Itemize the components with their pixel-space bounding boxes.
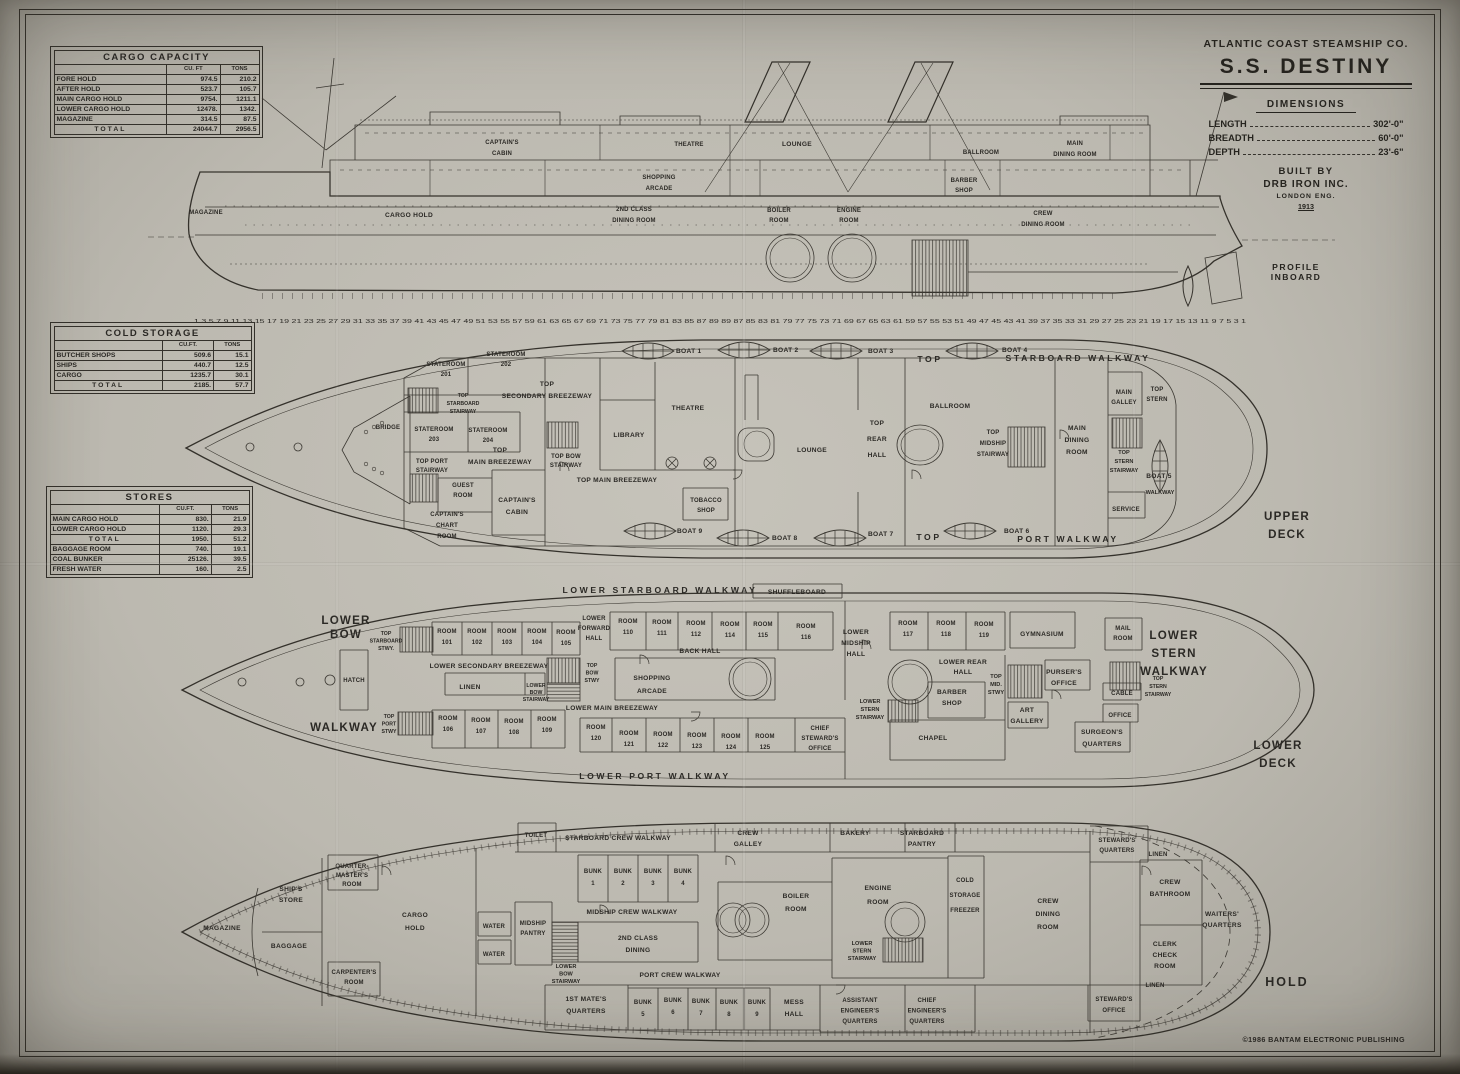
- shopping-arcade-label: SHOPPINGARCADE: [633, 675, 670, 695]
- captains-chart-room-label: CAPTAIN'SCHARTROOM: [430, 512, 463, 540]
- rudder: [1205, 252, 1242, 304]
- funnel-1: [745, 62, 810, 122]
- depth-value: 23'-6": [1378, 147, 1403, 157]
- built-by-label: BUILT BY: [1182, 166, 1430, 177]
- bunk-2-label: BUNK2: [614, 869, 633, 887]
- stewards-office-label: STEWARD'SOFFICE: [1095, 997, 1132, 1014]
- room-107-label: ROOM107: [471, 718, 490, 735]
- bow-walkway-label: WALKWAY: [310, 721, 378, 734]
- stateroom-202-label: STATEROOM202: [486, 352, 525, 368]
- walkway-label: WALKWAY: [1146, 490, 1175, 496]
- room-124-label: ROOM124: [721, 734, 740, 751]
- table-row: MAIN CARGO HOLD830.21.9: [50, 514, 249, 524]
- upper-deck-walls: [404, 358, 1176, 546]
- profile-caption: PROFILE INBOARD: [1258, 262, 1334, 282]
- boiler-circle-2: [735, 903, 769, 937]
- build-year: 1913: [1182, 202, 1430, 211]
- hold-magazine-label: MAGAZINE: [203, 925, 241, 932]
- vent-symbols: [666, 457, 716, 469]
- main-dining-room-label: MAINDININGROOM: [1065, 425, 1090, 456]
- bottom-walkway-label-2: PORT WALKWAY: [1017, 534, 1119, 544]
- linen-top-label: LINEN: [1149, 852, 1168, 858]
- top-stern-label: TOPSTERN: [1146, 387, 1167, 403]
- arcade-dome: [729, 658, 771, 700]
- assistant-engineers-quarters-label: ASSISTANTENGINEER'SQUARTERS: [841, 998, 880, 1025]
- bakery-label: BAKERY: [840, 830, 870, 837]
- lower-forward-hall-label: LOWERFORWARDHALL: [578, 616, 611, 642]
- frame-number-scale: 1 3 5 7 9 11 13 15 17 19 21 23 25 27 29 …: [194, 319, 1246, 325]
- bow-ring: [325, 675, 335, 685]
- barber-shop-label: BARBERSHOP: [937, 689, 967, 707]
- foremast: [262, 58, 396, 168]
- bunk-9-label: BUNK9: [748, 1000, 767, 1018]
- theatre-label: THEATRE: [672, 405, 705, 412]
- table-row: COAL BUNKER25126.39.5: [50, 554, 249, 564]
- boiler-circle-1: [716, 903, 750, 937]
- top-stern-stairway-hatch: [1112, 418, 1142, 448]
- lower-port-walkway-label: LOWER PORT WALKWAY: [579, 771, 731, 781]
- bunk-3-label: BUNK3: [644, 869, 663, 887]
- main-galley-label: MAINGALLEY: [1111, 390, 1137, 406]
- door-arc: [912, 470, 921, 479]
- lower-bow-label: LOWERBOW: [321, 614, 370, 641]
- guest-room-label: GUESTROOM: [452, 483, 474, 499]
- lower-deck-name: LOWERDECK: [1253, 739, 1302, 770]
- hull-outline: [188, 172, 1242, 293]
- funnel-2: [888, 62, 953, 122]
- midship-pantry-label: MIDSHIPPANTRY: [520, 921, 546, 937]
- door-arc: [640, 655, 649, 664]
- room-116-label: ROOM116: [796, 624, 815, 641]
- top-main-breezeway-fwd-label: TOPMAIN BREEZEWAY: [468, 447, 532, 466]
- room-112-label: ROOM112: [686, 621, 705, 638]
- quartermasters-room-label: QUARTER-MASTER'SROOM: [335, 864, 368, 888]
- top-bow-stwy-label: TOPBOWSTWY: [585, 663, 601, 684]
- boiler-1: [766, 234, 814, 282]
- dimensions-heading: DIMENSIONS: [1256, 99, 1356, 113]
- room-101-label: ROOM101: [437, 629, 456, 646]
- lower-secondary-breezeway-label: LOWER SECONDARY BREEZEWAY: [430, 663, 549, 670]
- ship-deck-plan-sheet: MAGAZINE CARGO HOLD CAPTAIN'SCABIN SHOPP…: [0, 0, 1460, 1074]
- crew-bathroom-label: CREWBATHROOM: [1150, 879, 1191, 898]
- room-111-label: ROOM111: [652, 620, 671, 637]
- profile-main-dining-label: MAINDINING ROOM: [1053, 141, 1097, 158]
- cold-storage-table: COLD STORAGE CU.FT.TONS BUTCHER SHOPS509…: [50, 322, 255, 394]
- funnel-stays: [705, 63, 990, 192]
- bunk-5-label: BUNK5: [634, 1000, 653, 1018]
- gymnasium-label: GYMNASIUM: [1020, 631, 1064, 638]
- room-120-label: ROOM120: [586, 725, 605, 742]
- top-stern-stairway-hatch-2: [1110, 662, 1140, 690]
- table-row: AFTER HOLD523.7105.7: [54, 84, 259, 94]
- bottom-walkway-label-1: TOP: [916, 532, 941, 542]
- cable-label: CABLE: [1111, 691, 1133, 697]
- table-total-row: TOTAL2185.57.7: [54, 380, 251, 390]
- top-port-stairway-label: TOP PORTSTAIRWAY: [416, 459, 448, 474]
- top-midship-stairway-label: TOPMIDSHIPSTAIRWAY: [977, 430, 1009, 458]
- boat9-label: BOAT 9: [677, 528, 703, 535]
- table-header-row: CU.FT.TONS: [54, 340, 251, 350]
- stores-table: STORES CU.FT.TONS MAIN CARGO HOLD830.21.…: [46, 486, 253, 578]
- top-bow-stwy-hatch: [547, 658, 580, 683]
- chapel-label: CHAPEL: [919, 735, 948, 742]
- top-port-stwy-hatch: [398, 712, 433, 735]
- starboard-crew-walkway-label: STARBOARD CREW WALKWAY: [565, 835, 671, 842]
- top-stern-stairway-label-2: TOPSTERNSTAIRWAY: [1145, 676, 1172, 698]
- starboard-pantry-label: STARBOARDPANTRY: [900, 830, 944, 848]
- crew-galley-label: CREWGALLEY: [734, 830, 763, 848]
- length-label: LENGTH: [1209, 119, 1247, 129]
- door-arc: [733, 470, 742, 479]
- boat8-label: BOAT 8: [772, 535, 798, 542]
- bunk-8-label: BUNK8: [720, 1000, 739, 1018]
- linen-label: LINEN: [459, 684, 480, 691]
- table-row: FRESH WATER160.2.5: [50, 564, 249, 574]
- lower-bow-stairway-hatch-hold: [552, 922, 578, 962]
- upper-deck-plan: BOAT 1 BOAT 2 BOAT 3 BOAT 4 BOAT 5 BOAT …: [186, 340, 1310, 558]
- dotted-leader: [1243, 154, 1375, 155]
- table-row: MAIN CARGO HOLD9754.1211.1: [54, 94, 259, 104]
- bow-capstan-2: [294, 443, 302, 451]
- top-stern-stairway-label: TOPSTERNSTAIRWAY: [1110, 450, 1139, 474]
- boiler-2-inner: [832, 238, 872, 278]
- lifeboat-9: [624, 523, 676, 539]
- lower-bow-stairway-label: LOWERBOWSTAIRWAY: [523, 683, 550, 703]
- stateroom-204-label: STATEROOM204: [468, 428, 507, 444]
- room-118-label: ROOM118: [936, 621, 955, 638]
- top-port-stwy-label: TOPPORTSTWY: [382, 714, 398, 735]
- lower-midship-hall-label: LOWERMIDSHIPHALL: [841, 629, 871, 658]
- top-rear-hall-label: TOPREARHALL: [867, 420, 887, 459]
- top-walkway-label-2: STARBOARD WALKWAY: [1006, 353, 1151, 363]
- cargo-capacity-title: CARGO CAPACITY: [54, 50, 260, 64]
- cold-storage-freezer-label: COLDSTORAGEFREEZER: [950, 878, 981, 914]
- room-115-label: ROOM115: [753, 622, 772, 639]
- deck-lines: [195, 172, 1219, 235]
- clerk-check-room-label: CLERKCHECKROOM: [1153, 941, 1178, 970]
- toilet-label: TOILET: [525, 833, 548, 839]
- room-109-label: ROOM109: [537, 717, 556, 734]
- profile-engine-room-label: ENGINEROOM: [837, 208, 861, 224]
- copyright-notice: ©1986 BANTAM ELECTRONIC PUBLISHING: [1205, 1035, 1405, 1044]
- profile-lounge-label: LOUNGE: [782, 141, 812, 148]
- waiters-quarters-label: WAITERS'QUARTERS: [1202, 911, 1242, 929]
- profile-shopping-arcade-label: SHOPPINGARCADE: [642, 175, 675, 192]
- chief-engineers-quarters-label: CHIEFENGINEER'SQUARTERS: [908, 998, 947, 1025]
- stair-dome-inner: [892, 664, 928, 700]
- top-mid-stwy-label: TOPMID.STWY: [988, 674, 1004, 696]
- service-label: SERVICE: [1112, 507, 1140, 513]
- tobacco-shop-label: TOBACCOSHOP: [690, 498, 722, 514]
- room-123-label: ROOM123: [687, 733, 706, 750]
- room-119-label: ROOM119: [974, 622, 993, 639]
- stores-title: STORES: [50, 490, 250, 504]
- hold-plan: TOILET STARBOARD CREW WALKWAY CREWGALLEY…: [182, 823, 1309, 1041]
- boat5-label: BOAT 5: [1146, 473, 1172, 480]
- profile-ballroom-label: BALLROOM: [963, 150, 999, 156]
- table-total-row: TOTAL1950.51.2: [50, 534, 249, 544]
- boiler-2: [828, 234, 876, 282]
- room-102-label: ROOM102: [467, 629, 486, 646]
- profile-cargo-hold-label: CARGO HOLD: [385, 212, 433, 219]
- top-bow-stairway-label: TOP BOWSTAIRWAY: [550, 454, 582, 469]
- bunk-6-label: BUNK6: [664, 998, 683, 1016]
- bow-capstan-4: [296, 678, 304, 686]
- cable-office-label: OFFICE: [1108, 713, 1131, 719]
- bunk-1-label: BUNK1: [584, 869, 603, 887]
- lower-main-breezeway-label: LOWER MAIN BREEZEWAY: [566, 705, 659, 712]
- art-gallery-label: ARTGALLERY: [1010, 707, 1044, 725]
- dotted-leader: [1257, 140, 1375, 141]
- top-starboard-stwy-label: TOPSTARBOARDSTWY.: [370, 631, 403, 652]
- lower-starboard-walkway-label: LOWER STARBOARD WALKWAY: [563, 585, 758, 595]
- room-122-label: ROOM122: [653, 732, 672, 749]
- boiler-circle-1-inner: [720, 907, 746, 933]
- lifeboat-1: [622, 343, 674, 359]
- bunk-7-label: BUNK7: [692, 999, 711, 1017]
- table-row: LOWER CARGO HOLD12478.1342.: [54, 104, 259, 114]
- table-row: SHIPS440.712.5: [54, 360, 251, 370]
- breadth-label: BREADTH: [1209, 133, 1254, 143]
- boat7-label: BOAT 7: [868, 531, 894, 538]
- length-dimension: LENGTH302'-0": [1209, 119, 1404, 129]
- top-starboard-stwy-hatch: [400, 627, 433, 652]
- top-secondary-breezeway-label: TOPSECONDARY BREEZEWAY: [502, 381, 593, 400]
- ballroom-floor: [897, 425, 943, 465]
- room-105-label: ROOM105: [556, 630, 575, 647]
- top-starboard-stairway-hatch: [408, 388, 438, 413]
- profile-crew-dining-label: CREWDINING ROOM: [1021, 211, 1065, 228]
- table-row: BAGGAGE ROOM740.19.1: [50, 544, 249, 554]
- door-arc: [1052, 690, 1061, 699]
- breadth-value: 60'-0": [1378, 133, 1403, 143]
- table-row: BUTCHER SHOPS509.615.1: [54, 350, 251, 360]
- lower-bow-stairway-label-hold: LOWERBOWSTAIRWAY: [552, 964, 581, 985]
- room-103-label: ROOM103: [497, 629, 516, 646]
- table-total-row: TOTAL24044.72956.5: [54, 124, 259, 134]
- cold-storage-title: COLD STORAGE: [54, 326, 252, 340]
- bow-capstan-1: [246, 443, 254, 451]
- ballroom-floor-inner: [901, 429, 939, 461]
- 2nd-class-dining-label: 2ND CLASSDINING: [618, 935, 658, 954]
- engine-hatch: [912, 240, 968, 296]
- lifeboat-3: [810, 343, 862, 359]
- double-rule: [1200, 83, 1412, 89]
- table-row: MAGAZINE314.587.5: [54, 114, 259, 124]
- mess-hall-label: MESSHALL: [784, 999, 804, 1018]
- length-value: 302'-0": [1373, 119, 1403, 129]
- dotted-leader: [1250, 126, 1370, 127]
- lower-stern-walkway-label: LOWERSTERNWALKWAY: [1140, 629, 1208, 678]
- chief-stewards-office-label: CHIEFSTEWARD'SOFFICE: [801, 726, 838, 752]
- mail-room-label: MAILROOM: [1113, 626, 1132, 642]
- superstructure-walls: [430, 125, 1110, 196]
- stateroom-203-label: STATEROOM203: [414, 427, 453, 443]
- depth-label: DEPTH: [1209, 147, 1241, 157]
- boat1-label: BOAT 1: [676, 348, 702, 355]
- table-row: CARGO1235.730.1: [54, 370, 251, 380]
- room-114-label: ROOM114: [720, 622, 739, 639]
- lifeboat-5: [1152, 440, 1168, 492]
- boiler-1-inner: [770, 238, 810, 278]
- water-2-label: WATER: [483, 952, 506, 958]
- company-name: ATLANTIC COAST STEAMSHIP CO.: [1182, 38, 1430, 50]
- surgeons-quarters-label: SURGEON'SQUARTERS: [1081, 729, 1123, 748]
- boiler-circle-2-inner: [739, 907, 765, 933]
- pursers-office-label: PURSER'SOFFICE: [1046, 669, 1082, 687]
- lower-deck-plan: LOWER STARBOARD WALKWAY SHUFFLEBOARD LOW…: [182, 584, 1314, 787]
- builder-location: LONDON ENG.: [1182, 193, 1430, 200]
- hatch-label: HATCH: [343, 678, 365, 684]
- top-mid-stwy-hatch: [1008, 665, 1042, 698]
- bridge-label: BRIDGE: [376, 425, 401, 431]
- lifeboat-6: [944, 523, 996, 539]
- top-starboard-stairway-label: TOPSTARBOARDSTAIRWAY: [447, 393, 480, 415]
- upper-deck-name: UPPERDECK: [1264, 510, 1310, 541]
- door-arc: [1142, 866, 1151, 875]
- profile-boiler-room-label: BOILERROOM: [767, 208, 791, 224]
- cargo-hold-label: CARGOHOLD: [402, 912, 428, 932]
- back-hall-label: BACK HALL: [679, 648, 720, 655]
- builder-name: DRB IRON INC.: [1182, 179, 1430, 190]
- bow-capstan-3: [238, 678, 246, 686]
- lifeboat-2: [718, 342, 770, 358]
- library-label: LIBRARY: [613, 432, 644, 439]
- lower-bow-stairway-hatch: [547, 683, 580, 701]
- first-mates-quarters-label: 1ST MATE'SQUARTERS: [565, 996, 606, 1015]
- lounge-seating: [738, 428, 774, 461]
- door-arc: [382, 866, 391, 875]
- lounge-table: [744, 431, 770, 457]
- profile-theatre-label: THEATRE: [674, 142, 703, 148]
- lower-stern-stairway-hatch: [888, 700, 918, 722]
- room-106-label: ROOM106: [438, 716, 457, 733]
- baggage-label: BAGGAGE: [271, 943, 307, 950]
- title-block: ATLANTIC COAST STEAMSHIP CO. S.S. DESTIN…: [1182, 38, 1430, 211]
- port-crew-walkway-label: PORT CREW WALKWAY: [639, 972, 720, 979]
- ship-name: S.S. DESTINY: [1182, 55, 1430, 79]
- propeller: [1183, 266, 1193, 306]
- stewards-quarters-top-label: STEWARD'SQUARTERS: [1098, 838, 1135, 854]
- table-row: LOWER CARGO HOLD1120.29.3: [50, 524, 249, 534]
- table-row: FORE HOLD974.5210.2: [54, 74, 259, 84]
- top-port-stairway-hatch: [410, 474, 438, 502]
- room-125-label: ROOM125: [755, 734, 774, 751]
- room-117-label: ROOM117: [898, 621, 917, 638]
- door-arc: [691, 712, 700, 721]
- room-121-label: ROOM121: [619, 731, 638, 748]
- carpenters-room-label: CARPENTER'SROOM: [332, 970, 377, 986]
- captains-cabin-label: CAPTAIN'SCABIN: [498, 497, 536, 516]
- engine-cylinder-inner: [891, 908, 919, 936]
- door-arc: [726, 856, 735, 865]
- room-104-label: ROOM104: [527, 629, 546, 646]
- lounge-label: LOUNGE: [797, 447, 827, 454]
- upper-deck-outline: [186, 340, 1267, 558]
- boat2-label: BOAT 2: [773, 347, 799, 354]
- profile-view: MAGAZINE CARGO HOLD CAPTAIN'SCABIN SHOPP…: [148, 58, 1335, 325]
- lower-rear-hall-label: LOWER REARHALL: [939, 659, 987, 676]
- profile-magazine-label: MAGAZINE: [189, 210, 223, 216]
- ballroom-label: BALLROOM: [930, 403, 971, 410]
- lower-stern-stairway-label: LOWERSTERNSTAIRWAY: [856, 699, 885, 721]
- room-110-label: ROOM110: [618, 619, 637, 636]
- profile-2nd-class-dining-label: 2ND CLASSDINING ROOM: [612, 207, 656, 224]
- top-walkway-label-1: TOP: [917, 354, 942, 364]
- arcade-dome-inner: [733, 662, 767, 696]
- ships-store-label: SHIP'SSTORE: [279, 886, 303, 904]
- top-main-breezeway-label: TOP MAIN BREEZEWAY: [577, 477, 658, 484]
- stair-dome: [888, 660, 932, 704]
- water-1-label: WATER: [483, 924, 506, 930]
- bunk-4-label: BUNK4: [674, 869, 693, 887]
- boiler-room-label: BOILERROOM: [783, 893, 810, 913]
- boat3-label: BOAT 3: [868, 348, 894, 355]
- table-header-row: CU.FT.TONS: [50, 504, 249, 514]
- profile-barber-shop-label: BARBERSHOP: [951, 178, 978, 194]
- cargo-capacity-table: CARGO CAPACITY CU. FTTONS FORE HOLD974.5…: [50, 46, 263, 138]
- lifeboat-4: [946, 343, 998, 359]
- crew-dining-room-label: CREWDININGROOM: [1036, 898, 1061, 931]
- engine-room-label: ENGINEROOM: [864, 885, 891, 906]
- top-midship-stairway-hatch: [1008, 427, 1045, 467]
- lifeboat-8: [717, 530, 769, 546]
- door-arc: [836, 985, 845, 994]
- top-bow-stairway-hatch: [547, 422, 578, 448]
- shuffleboard-label: SHUFFLEBOARD: [768, 589, 826, 596]
- linen-bot-label: LINEN: [1146, 983, 1165, 989]
- lower-stern-stairway-label-hold: LOWERSTERNSTAIRWAY: [848, 941, 877, 962]
- hold-name: HOLD: [1265, 975, 1308, 989]
- profile-captains-cabin-label: CAPTAIN'SCABIN: [485, 140, 518, 157]
- bridge: [342, 396, 410, 504]
- breadth-dimension: BREADTH60'-0": [1209, 133, 1404, 143]
- midship-crew-walkway-label: MIDSHIP CREW WALKWAY: [587, 909, 678, 916]
- table-header-row: CU. FTTONS: [54, 64, 259, 74]
- depth-dimension: DEPTH23'-6": [1209, 147, 1404, 157]
- room-108-label: ROOM108: [504, 719, 523, 736]
